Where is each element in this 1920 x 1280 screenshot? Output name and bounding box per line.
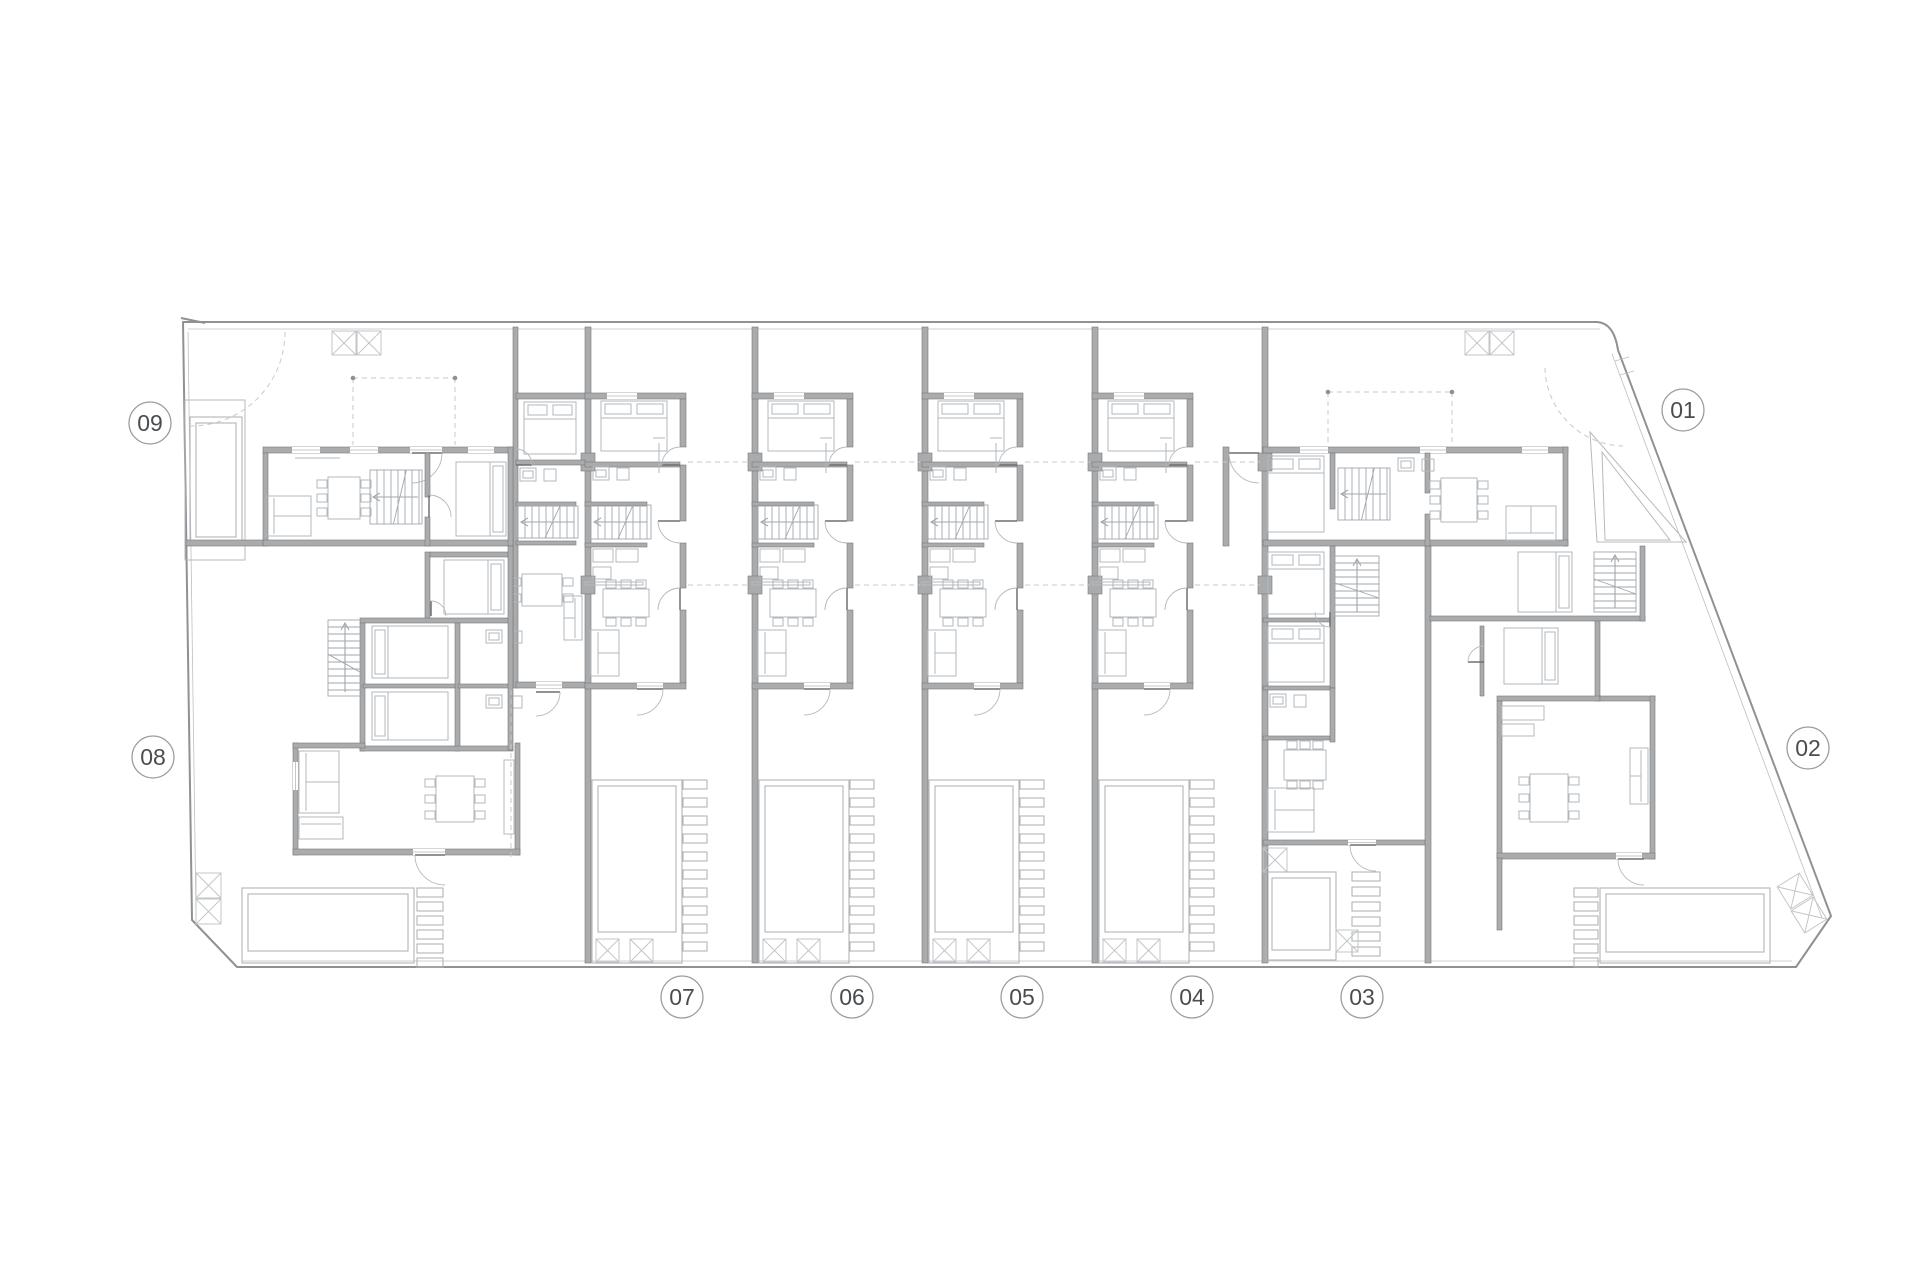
townhouse-units	[585, 393, 1214, 963]
unit-label-08: 08	[132, 736, 174, 778]
unit-label-05: 05	[1001, 976, 1043, 1018]
door-swing	[1229, 453, 1259, 483]
svg-text:03: 03	[1349, 984, 1375, 1010]
door-swing	[825, 588, 847, 610]
pool	[190, 417, 242, 543]
unit-label-01: 01	[1662, 389, 1704, 431]
svg-text:06: 06	[839, 984, 865, 1010]
x-marker	[357, 331, 381, 355]
x-marker	[1137, 939, 1160, 962]
unit-label-09: 09	[129, 402, 171, 444]
svg-text:02: 02	[1795, 735, 1821, 761]
floor-plan-drawing: 090807060504030201	[0, 0, 1920, 1280]
door-swing	[1618, 859, 1644, 885]
door-swing	[415, 855, 445, 885]
stepping-stones	[850, 780, 874, 951]
pool	[1266, 872, 1336, 960]
stepping-stones	[1574, 888, 1598, 967]
stepping-stones	[417, 888, 443, 967]
townhouse-unit	[752, 393, 874, 963]
townhouse-unit	[1092, 393, 1214, 963]
stepping-stones	[1352, 872, 1380, 956]
pool	[1600, 888, 1770, 963]
x-marker	[1791, 897, 1827, 933]
door-swing	[995, 521, 1017, 543]
door-swing	[1144, 689, 1170, 715]
stepping-stones	[683, 780, 707, 951]
door-swing	[658, 588, 680, 610]
x-marker	[1103, 939, 1126, 962]
x-marker	[1490, 331, 1514, 355]
svg-text:01: 01	[1670, 397, 1696, 423]
stepping-stones	[1020, 780, 1044, 951]
pool	[592, 780, 682, 963]
door-swing	[658, 521, 680, 543]
x-marker	[967, 939, 990, 962]
pool	[759, 780, 849, 963]
pool	[242, 888, 414, 963]
x-marker	[596, 939, 619, 962]
x-marker	[797, 939, 820, 962]
door-swing	[1350, 845, 1376, 871]
door-swing	[974, 689, 1000, 715]
door-swing	[429, 495, 451, 517]
townhouse-unit	[922, 393, 1044, 963]
townhouse-unit	[585, 393, 707, 963]
svg-text:08: 08	[140, 744, 166, 770]
svg-text:04: 04	[1179, 984, 1205, 1010]
buildings-and-site-elements	[185, 327, 1827, 967]
door-swing	[825, 521, 847, 543]
door-swing	[804, 689, 830, 715]
unit-label-03: 03	[1341, 976, 1383, 1018]
x-marker	[196, 899, 221, 924]
unit-label-07: 07	[661, 976, 703, 1018]
x-marker	[332, 331, 356, 355]
unit-label-04: 04	[1171, 976, 1213, 1018]
door-swing	[1165, 588, 1187, 610]
floor-plan-sheet: 090807060504030201	[0, 0, 1920, 1280]
svg-text:09: 09	[137, 410, 163, 436]
x-marker	[630, 939, 653, 962]
x-marker	[763, 939, 786, 962]
svg-text:05: 05	[1009, 984, 1035, 1010]
svg-text:07: 07	[669, 984, 695, 1010]
unit-label-06: 06	[831, 976, 873, 1018]
unit-label-02: 02	[1787, 727, 1829, 769]
stepping-stones	[1190, 780, 1214, 951]
x-marker	[933, 939, 956, 962]
site-boundary	[181, 318, 1831, 967]
door-swing	[536, 692, 560, 716]
pool	[929, 780, 1019, 963]
door-swing	[995, 588, 1017, 610]
pool	[1099, 780, 1189, 963]
x-marker	[1465, 331, 1489, 355]
door-swing	[1165, 521, 1187, 543]
door-swing	[637, 689, 663, 715]
x-marker	[196, 873, 221, 898]
